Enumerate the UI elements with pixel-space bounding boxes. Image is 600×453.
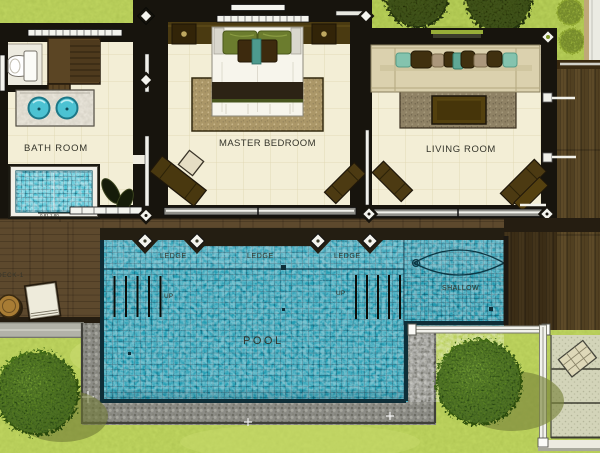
svg-text:0.81 1.80: 0.81 1.80 xyxy=(40,213,59,218)
svg-text:DECK-1: DECK-1 xyxy=(0,272,24,279)
svg-text:UP: UP xyxy=(336,290,345,297)
svg-text:BATH ROOM: BATH ROOM xyxy=(24,143,88,154)
svg-text:LEDGE: LEDGE xyxy=(247,253,274,260)
svg-text:POOL: POOL xyxy=(243,335,284,347)
svg-text:LIVING ROOM: LIVING ROOM xyxy=(426,144,496,155)
svg-text:SHALLOW: SHALLOW xyxy=(442,285,479,292)
svg-text:MASTER BEDROOM: MASTER BEDROOM xyxy=(219,138,316,149)
svg-text:LEDGE: LEDGE xyxy=(160,253,187,260)
svg-text:UP: UP xyxy=(164,293,173,300)
svg-text:LEDGE: LEDGE xyxy=(334,253,361,260)
